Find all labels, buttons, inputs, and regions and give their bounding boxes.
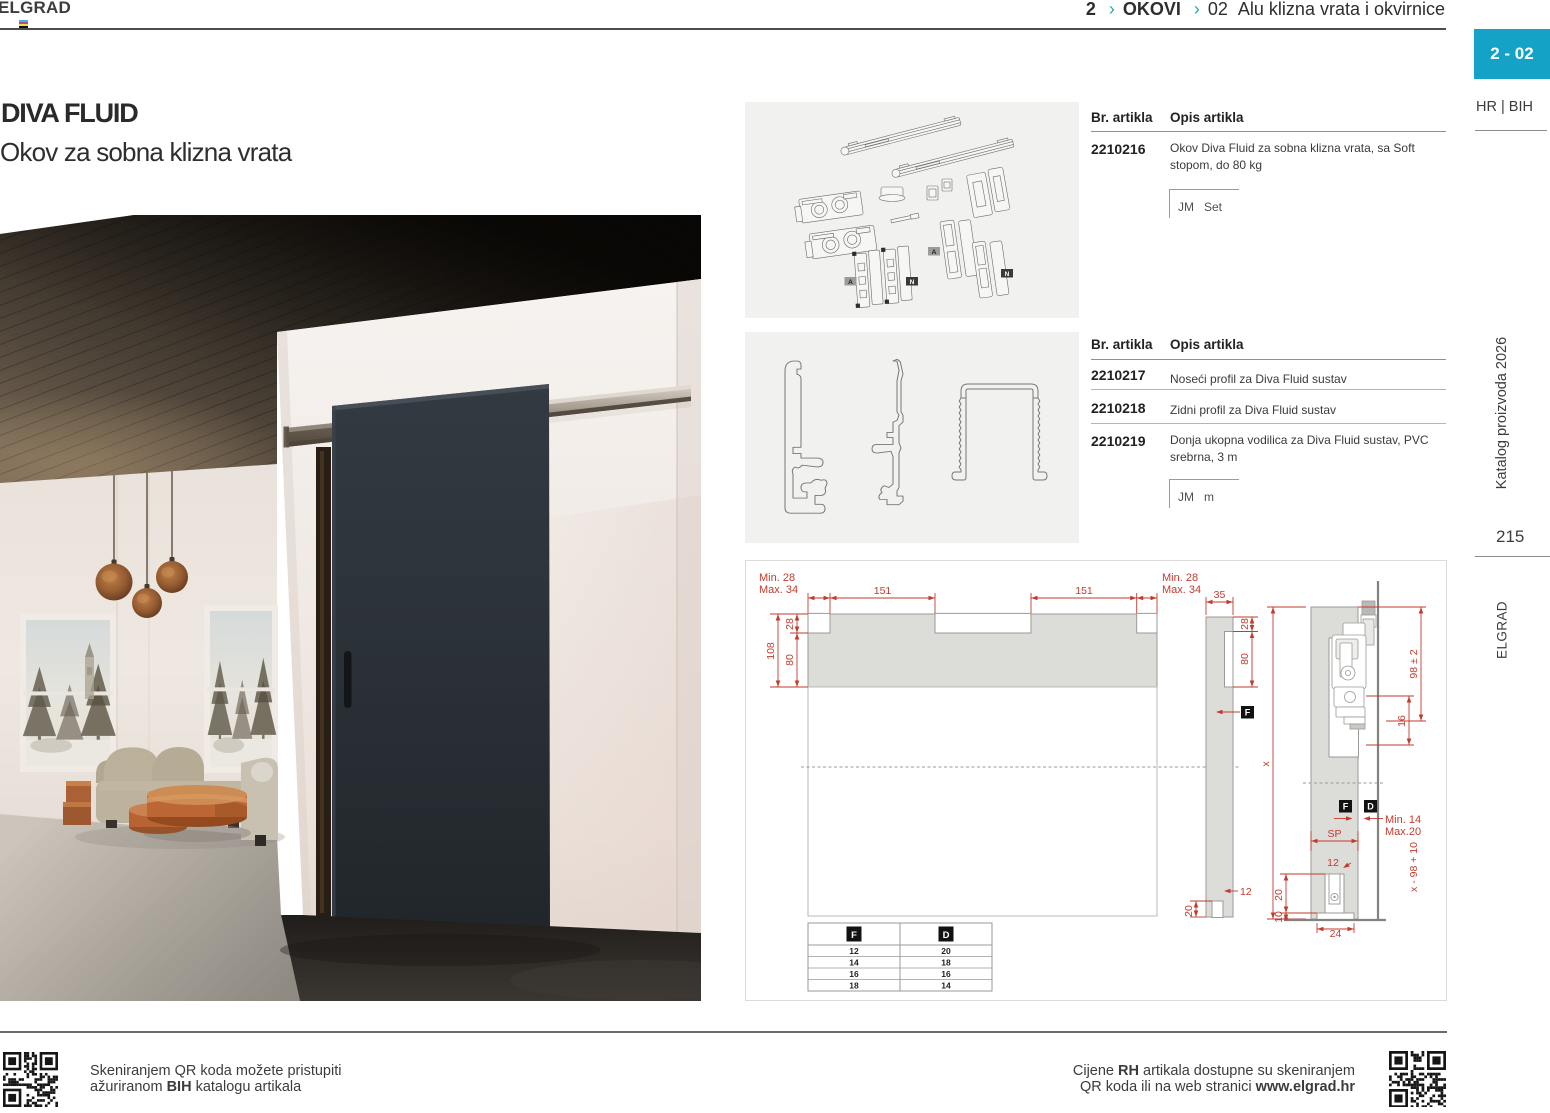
svg-text:14: 14 bbox=[941, 980, 951, 990]
svg-text:35: 35 bbox=[1214, 589, 1226, 601]
svg-text:14: 14 bbox=[849, 957, 859, 967]
svg-text:28: 28 bbox=[1239, 618, 1251, 630]
svg-text:18: 18 bbox=[941, 957, 951, 967]
svg-text:10: 10 bbox=[1273, 911, 1285, 923]
svg-text:SP: SP bbox=[1327, 828, 1341, 840]
svg-text:151: 151 bbox=[1075, 585, 1093, 597]
svg-text:20: 20 bbox=[1183, 905, 1195, 917]
svg-text:D: D bbox=[943, 930, 950, 941]
svg-text:18: 18 bbox=[849, 980, 859, 990]
svg-text:80: 80 bbox=[784, 654, 796, 666]
svg-text:16: 16 bbox=[1396, 715, 1408, 727]
svg-text:F: F bbox=[1343, 802, 1349, 812]
svg-text:x: x bbox=[1260, 761, 1272, 767]
svg-text:Min. 14: Min. 14 bbox=[1385, 814, 1421, 826]
svg-text:N: N bbox=[910, 279, 915, 286]
svg-text:20: 20 bbox=[941, 946, 951, 956]
svg-text:12: 12 bbox=[849, 946, 859, 956]
svg-text:12: 12 bbox=[1240, 886, 1252, 898]
svg-text:F: F bbox=[851, 930, 857, 941]
svg-text:D: D bbox=[1367, 802, 1374, 812]
svg-text:16: 16 bbox=[849, 969, 859, 979]
svg-text:28: 28 bbox=[784, 618, 796, 630]
svg-text:80: 80 bbox=[1239, 653, 1251, 665]
svg-text:A: A bbox=[932, 249, 937, 256]
svg-text:24: 24 bbox=[1330, 928, 1342, 940]
svg-text:12: 12 bbox=[1327, 857, 1339, 869]
svg-text:108: 108 bbox=[765, 642, 777, 660]
svg-text:Min. 28: Min. 28 bbox=[759, 572, 795, 584]
svg-text:Max. 34: Max. 34 bbox=[1162, 584, 1201, 596]
svg-text:16: 16 bbox=[941, 969, 951, 979]
svg-text:98 ± 2: 98 ± 2 bbox=[1408, 649, 1420, 678]
svg-text:Max. 34: Max. 34 bbox=[759, 584, 798, 596]
svg-text:20: 20 bbox=[1273, 889, 1285, 901]
svg-text:F: F bbox=[1245, 708, 1251, 718]
svg-text:Max.20: Max.20 bbox=[1385, 826, 1421, 838]
svg-text:A: A bbox=[848, 279, 853, 286]
svg-text:x - 98 + 10: x - 98 + 10 bbox=[1408, 842, 1420, 892]
svg-text:N: N bbox=[1005, 271, 1010, 278]
svg-text:151: 151 bbox=[874, 585, 892, 597]
svg-text:Min. 28: Min. 28 bbox=[1162, 572, 1198, 584]
